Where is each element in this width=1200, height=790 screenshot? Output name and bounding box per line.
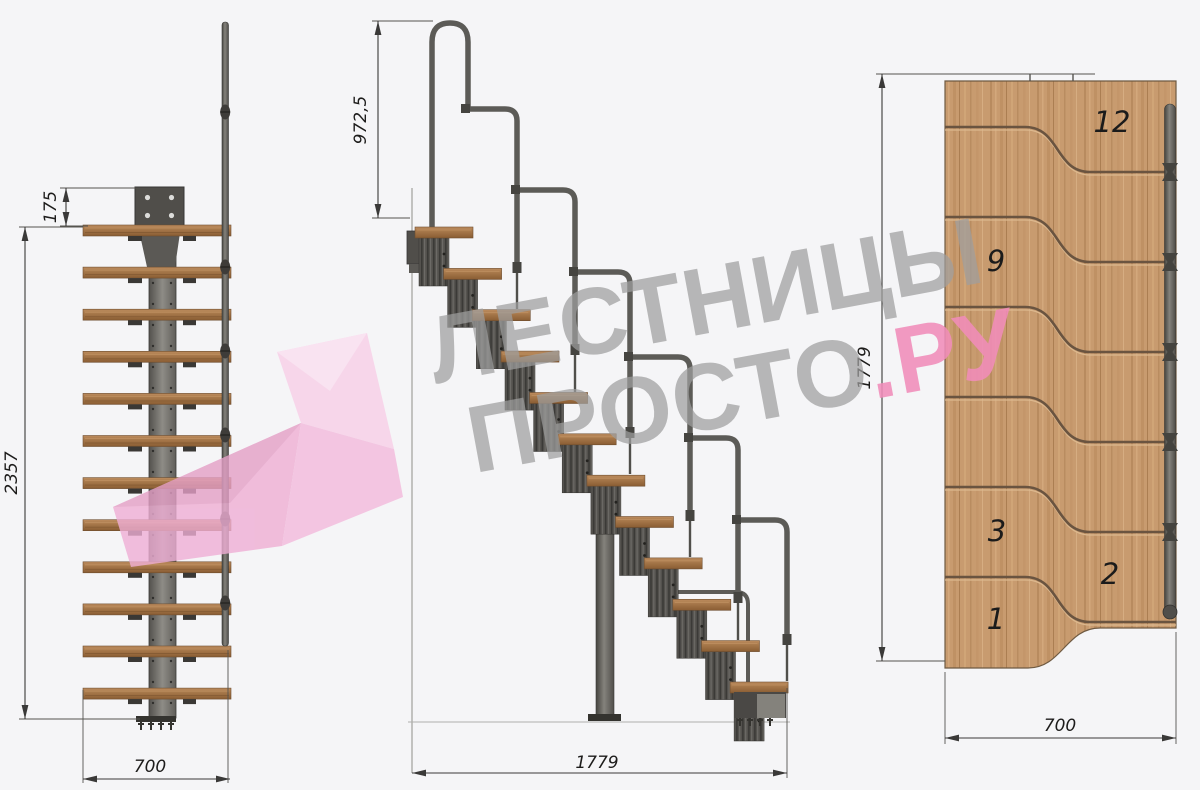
staircase-technical-drawing: 175 2357 700 (0, 0, 1200, 790)
dimension-plan-length: 1779 (855, 346, 875, 389)
plan-wall-bracket (1030, 74, 1073, 81)
dimension-bracket-offset: 175 (41, 191, 61, 223)
dimension-total-height: 2357 (2, 451, 22, 494)
anchor-bolts (138, 722, 174, 730)
bottom-foot-module (734, 692, 786, 726)
drawing-page: 175 2357 700 (0, 0, 1200, 790)
dimension-side-length: 1779 (575, 753, 618, 773)
dimension-plan-width: 700 (1044, 716, 1076, 736)
base-plate (136, 716, 176, 722)
top-plan-view: 12 9 3 2 1 1779 700 (855, 74, 1178, 744)
step-number-3: 3 (988, 514, 1006, 548)
step-number-12: 12 (1094, 105, 1131, 139)
step-number-2: 2 (1101, 557, 1119, 591)
front-elevation-view: 175 2357 700 (2, 22, 231, 783)
step-number-9: 9 (987, 244, 1005, 278)
side-elevation-view: 972,5 1779 (351, 21, 792, 778)
dimension-handrail-height: 972,5 (351, 96, 371, 145)
dimension-front-width: 700 (134, 757, 166, 777)
step-number-1: 1 (987, 602, 1005, 636)
